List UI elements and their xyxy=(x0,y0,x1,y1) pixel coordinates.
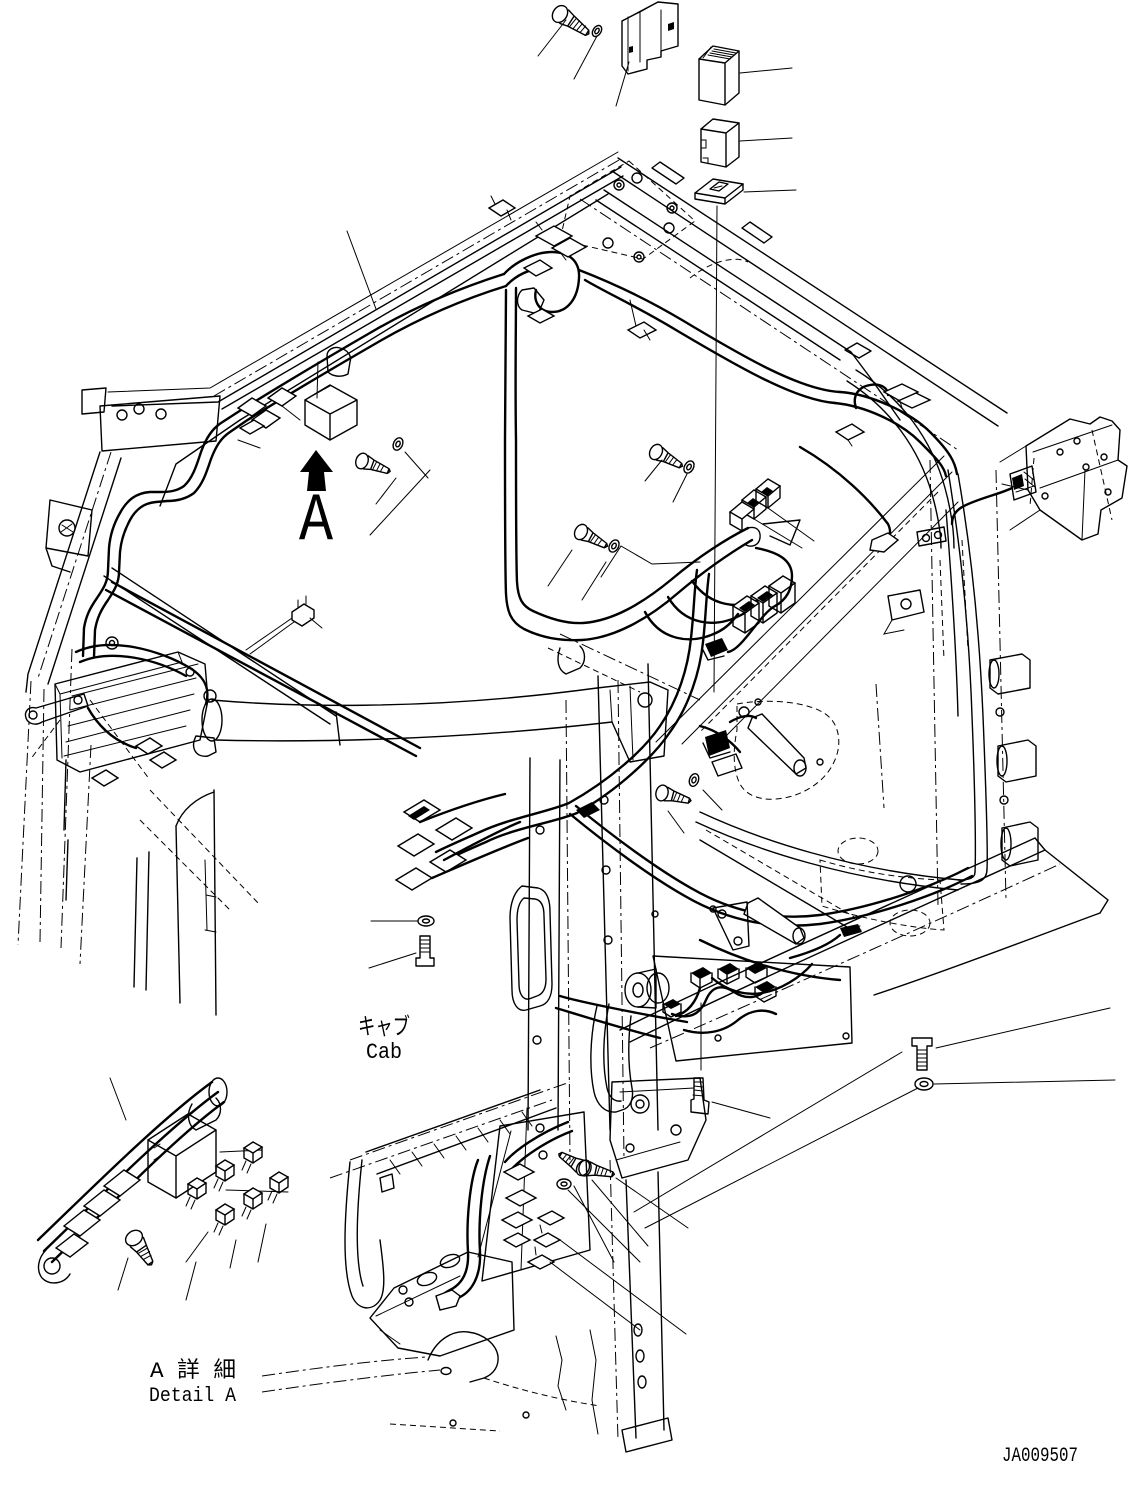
svg-text:JA009507: JA009507 xyxy=(1002,1445,1078,1468)
svg-text:キャブ: キャブ xyxy=(358,1014,410,1041)
svg-text:Detail A: Detail A xyxy=(149,1385,236,1408)
svg-text:A: A xyxy=(299,483,333,560)
svg-text:Cab: Cab xyxy=(366,1040,402,1065)
svg-text:A 詳 細: A 詳 細 xyxy=(150,1358,236,1384)
